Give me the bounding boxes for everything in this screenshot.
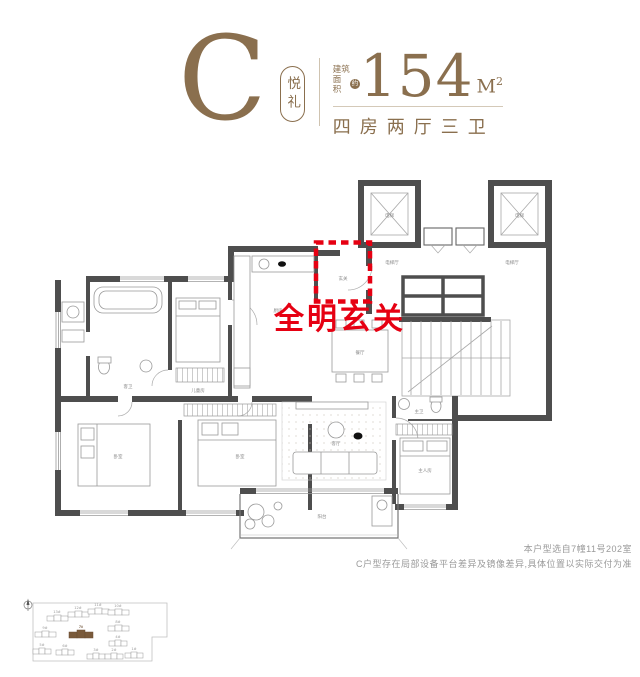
site-building: 11#: [88, 603, 109, 614]
kids-bed: [176, 298, 220, 362]
svg-text:7#: 7#: [79, 625, 83, 629]
site-building: 1#: [125, 647, 143, 658]
staircase: [399, 317, 510, 396]
site-plan: 13# 12# 11# 10# 9# 7#: [24, 599, 167, 662]
kitchen-faucet: [278, 261, 286, 267]
site-building: 6#: [56, 644, 74, 655]
dining-label: 餐厅: [356, 349, 365, 356]
balcony-label: 阳台: [318, 513, 327, 520]
elevator-left-label: 电梯: [385, 212, 394, 219]
elevator-right-label: 电梯: [515, 212, 524, 219]
svg-text:5#: 5#: [39, 643, 44, 647]
svg-text:3#: 3#: [93, 648, 98, 652]
master-wardrobe: [396, 424, 452, 435]
armchair: [354, 433, 363, 440]
svg-text:11#: 11#: [94, 603, 102, 607]
site-building: 10#: [108, 604, 129, 615]
disclaimer-line1: 本户型选自7幢11号202室: [356, 542, 632, 557]
floor-plan-canvas: 电梯 电梯 电梯厅 电梯厅: [0, 0, 640, 677]
kids-wardrobe: [176, 368, 224, 382]
site-building: 5#: [33, 643, 51, 654]
site-building: 12#: [68, 606, 89, 617]
fridge: [234, 368, 250, 386]
svg-text:6#: 6#: [62, 644, 67, 648]
vestibule-right: [456, 228, 484, 245]
entry-label: 玄关: [339, 275, 348, 282]
disclaimer-line2: C户型存在局部设备平台差异及镜像差异,具体位置以实际交付为准: [356, 557, 632, 572]
elevator-hall-right-label: 电梯厅: [505, 259, 519, 266]
vestibule-door-left: [431, 245, 445, 253]
master-sink: [399, 399, 410, 410]
svg-text:4#: 4#: [115, 635, 120, 639]
site-building: 13#: [47, 610, 68, 621]
washer: [62, 302, 84, 322]
coffee-table: [328, 422, 344, 438]
svg-text:12#: 12#: [74, 606, 82, 610]
balcony-cabinet: [372, 496, 392, 526]
site-building-highlighted: 7#: [69, 625, 93, 638]
vestibule-left: [424, 228, 452, 245]
core-bottom-wall: [455, 415, 552, 421]
vestibule-door-right: [463, 245, 477, 253]
core-right-wall: [546, 180, 552, 421]
site-building: 8#: [108, 620, 129, 631]
svg-text:9#: 9#: [42, 626, 47, 630]
master-label: 主人房: [418, 467, 432, 474]
living-label: 客厅: [332, 440, 341, 447]
bedroom-left-label: 卧室: [114, 453, 123, 460]
floorplan-page: C 悦礼 建筑 面积 约 154 M2 四房两厅三卫: [0, 0, 640, 677]
bath-label: 客卫: [124, 383, 133, 390]
svg-text:1#: 1#: [131, 647, 136, 651]
shelf: [62, 330, 84, 342]
compass-icon: [24, 599, 32, 612]
sofa: [293, 452, 377, 474]
svg-text:13#: 13#: [53, 610, 61, 614]
wardrobe-mid: [184, 404, 276, 416]
tv-stand: [296, 402, 368, 409]
kids-room-label: 儿童房: [191, 387, 205, 394]
disclaimer: 本户型选自7幢11号202室 C户型存在局部设备平台差异及镜像差异,具体位置以实…: [356, 542, 632, 572]
site-building: 2#: [105, 648, 123, 659]
site-building: 3#: [87, 648, 105, 659]
site-building: 9#: [35, 626, 56, 637]
elevator-hall-left-label: 电梯厅: [385, 259, 399, 266]
building-core: 电梯 电梯 电梯厅 电梯厅: [361, 180, 552, 421]
svg-text:2#: 2#: [111, 648, 116, 652]
balcony-plant: [248, 504, 264, 520]
master-bath-label: 主卫: [415, 408, 424, 415]
bedroom-mid-label: 卧室: [236, 453, 245, 460]
master-bed: [400, 438, 450, 494]
bath-sink: [140, 360, 152, 372]
bed-mid: [198, 420, 276, 486]
site-building: 4#: [109, 635, 127, 646]
entry-highlight-text: 全明玄关: [273, 302, 406, 337]
svg-text:10#: 10#: [114, 604, 122, 608]
svg-text:8#: 8#: [115, 620, 120, 624]
